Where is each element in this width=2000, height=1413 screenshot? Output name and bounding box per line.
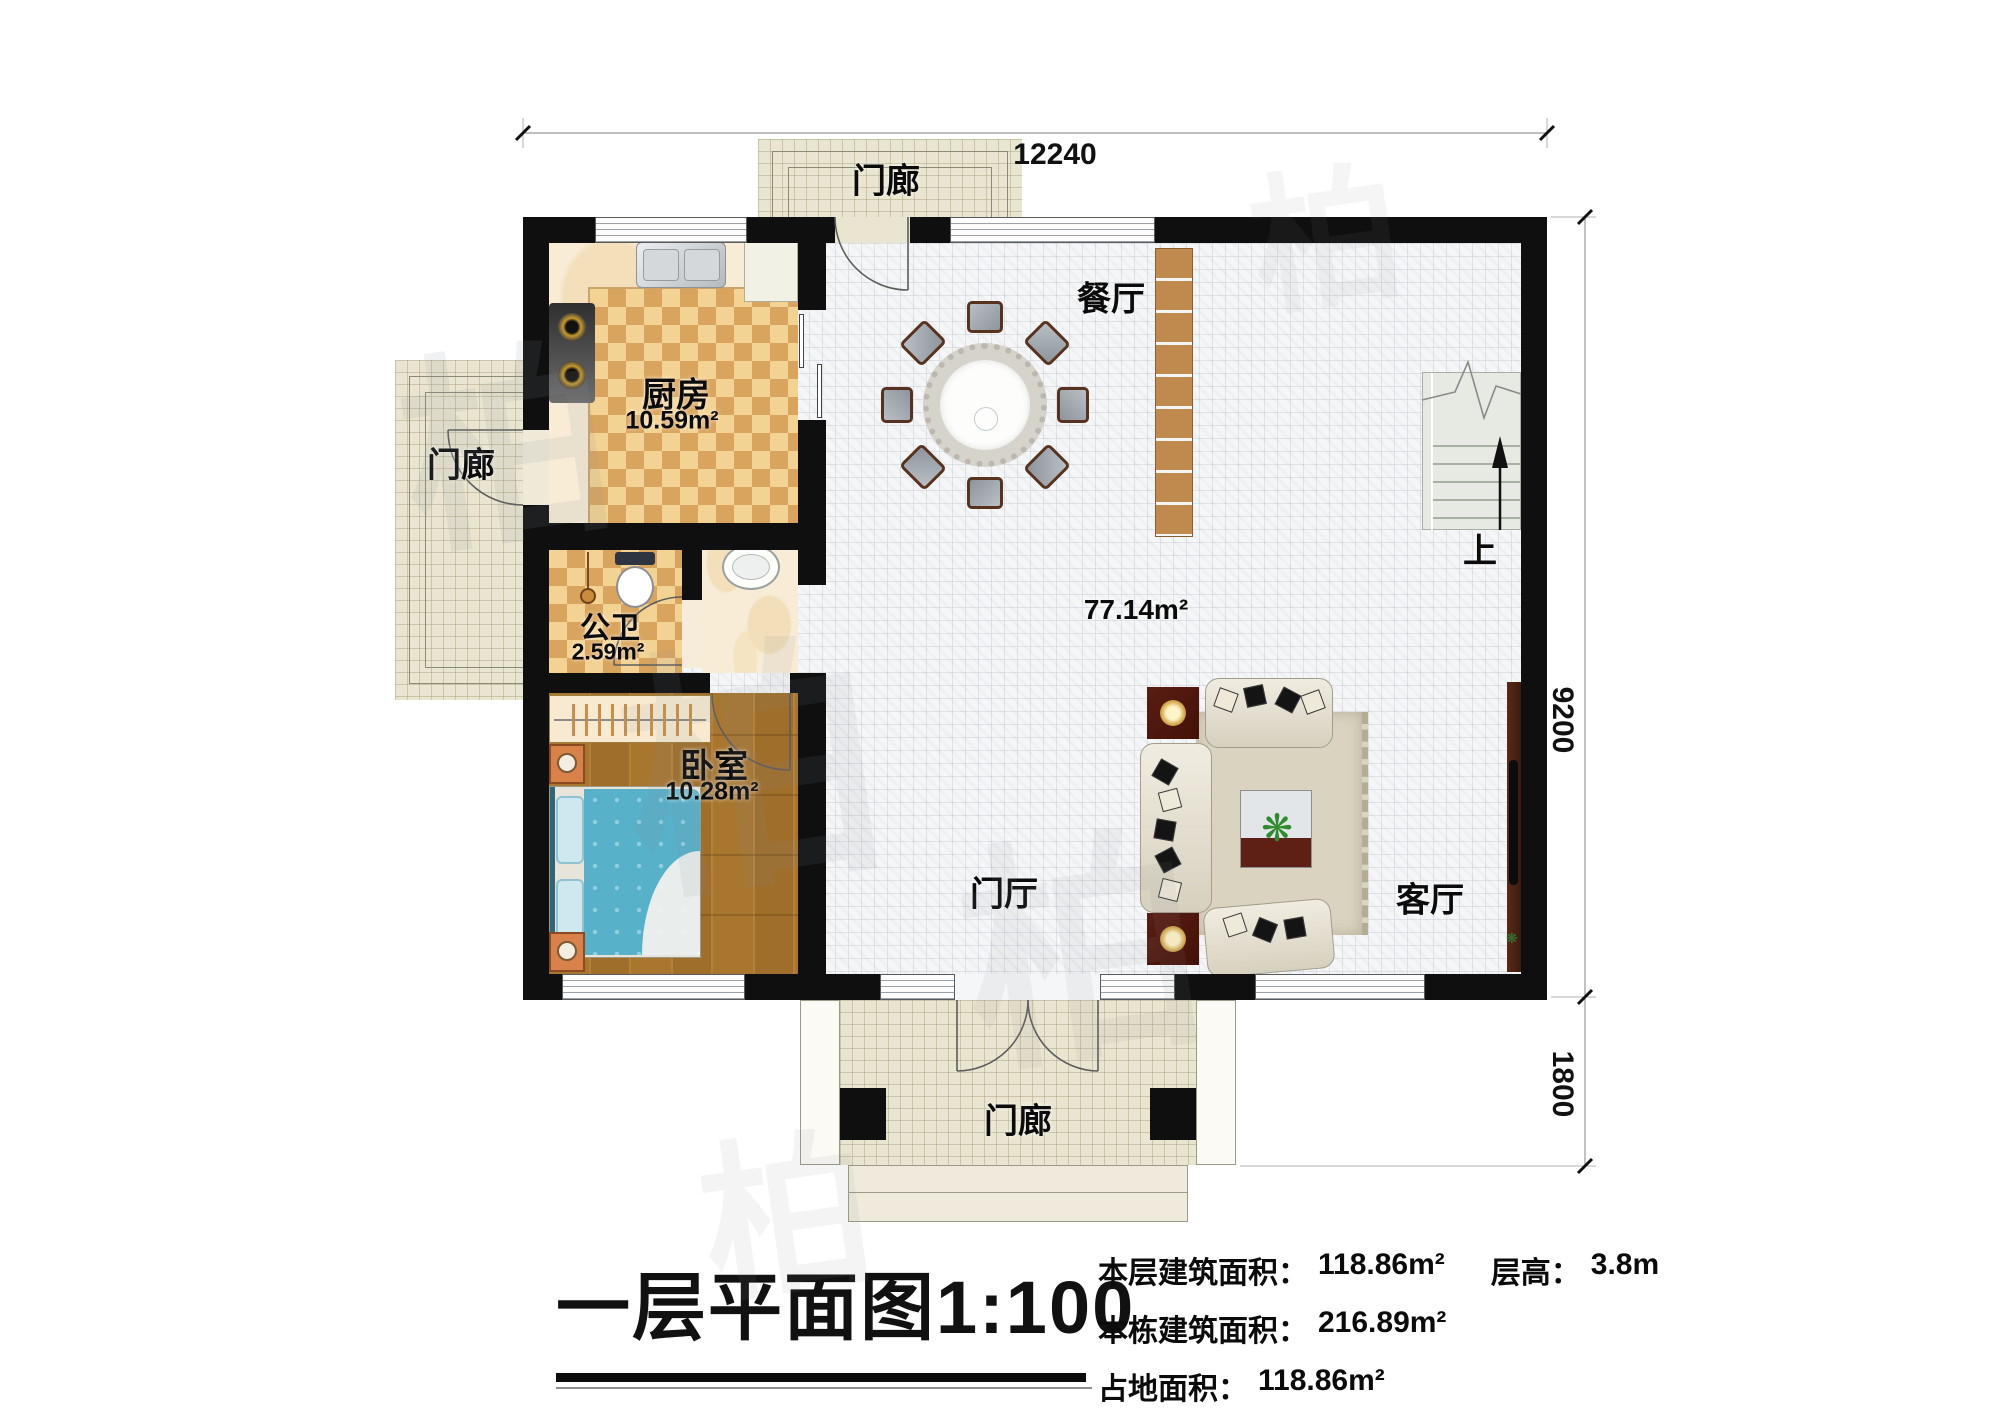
dim-right-label: 9200 bbox=[1545, 670, 1579, 770]
stair-treads bbox=[1431, 429, 1520, 529]
wall-top-c bbox=[910, 217, 950, 243]
nightstand-bottom bbox=[549, 932, 585, 972]
area-bath: 2.59m² bbox=[572, 639, 645, 666]
window-foyer-left bbox=[880, 974, 955, 1000]
nightstand-top bbox=[549, 744, 585, 784]
porch-column-left bbox=[840, 1088, 886, 1140]
stat-total-area-label: 本栋建筑面积： bbox=[1098, 1306, 1308, 1350]
wall-right bbox=[1521, 217, 1547, 1000]
burner-2 bbox=[558, 361, 586, 389]
stat-height-label: 层高： bbox=[1491, 1248, 1581, 1292]
wash-basin-icon bbox=[722, 544, 780, 590]
nightstand-lamp-icon bbox=[557, 941, 577, 961]
tv-icon bbox=[1509, 760, 1518, 885]
toilet-icon bbox=[612, 552, 658, 610]
toilet-bowl bbox=[616, 566, 654, 608]
stat-footprint-value: 118.86m² bbox=[1258, 1364, 1385, 1408]
dining-chair bbox=[881, 387, 913, 423]
title-block: 一层平面图1:100 bbox=[556, 1248, 1135, 1389]
shower-head-icon bbox=[578, 552, 598, 610]
burner-1 bbox=[558, 313, 586, 341]
stove bbox=[549, 303, 595, 403]
label-stairs-up: 上 bbox=[1463, 524, 1497, 573]
toilet-tank bbox=[615, 552, 655, 565]
porch-bottom-steps bbox=[848, 1165, 1188, 1222]
threshold-top-door bbox=[835, 217, 910, 243]
wall-bottom-c bbox=[1175, 974, 1255, 1000]
wall-kitchen-bottom bbox=[549, 523, 798, 550]
tv-plant-icon: ❋ bbox=[1506, 930, 1522, 946]
wall-bath-right bbox=[682, 550, 702, 600]
dining-table bbox=[923, 343, 1047, 467]
table-lamp-icon bbox=[1160, 926, 1186, 952]
kitchen-sink bbox=[636, 242, 726, 288]
label-hall-area: 77.14m² bbox=[1084, 594, 1188, 626]
dining-chair bbox=[967, 477, 1003, 509]
label-porch-bottom: 门廊 bbox=[984, 1094, 1052, 1143]
sofa-pillow bbox=[1243, 684, 1267, 708]
fridge bbox=[744, 240, 798, 302]
sink-basin-left bbox=[643, 249, 679, 281]
window-foyer-right bbox=[1100, 974, 1175, 1000]
porch-column-right bbox=[1150, 1088, 1196, 1140]
porch-step-line bbox=[848, 1192, 1188, 1193]
wall-kitchen-right-b bbox=[798, 420, 826, 585]
window-bedroom-bottom bbox=[562, 974, 745, 1000]
title-underline-thin bbox=[556, 1387, 1092, 1389]
plant-icon: ❋ bbox=[1255, 807, 1299, 851]
dining-table-ring bbox=[974, 407, 998, 431]
label-dining: 餐厅 bbox=[1077, 272, 1145, 321]
nightstand-lamp-icon bbox=[557, 753, 577, 773]
stair-stringer bbox=[1431, 373, 1433, 531]
label-porch-left: 门廊 bbox=[427, 438, 495, 487]
stat-floor-area-value: 118.86m² bbox=[1318, 1248, 1445, 1292]
wall-kitchen-right-a bbox=[798, 237, 826, 310]
dim-porch-label: 1800 bbox=[1545, 1034, 1579, 1134]
wall-bedroom-top-a bbox=[549, 673, 710, 693]
window-living-bottom bbox=[1255, 974, 1425, 1000]
staircase bbox=[1422, 372, 1521, 530]
stat-total-area-value: 216.89m² bbox=[1318, 1306, 1446, 1350]
area-kitchen: 10.59m² bbox=[625, 407, 718, 436]
floor-plan-canvas: ❋ ❋ bbox=[0, 0, 2000, 1413]
wall-left-a bbox=[523, 217, 549, 430]
threshold-bath-door bbox=[682, 600, 702, 668]
stats-block: 本层建筑面积：118.86m² 层高：3.8m 本栋建筑面积：216.89m² … bbox=[1098, 1248, 1659, 1413]
end-table-bottom bbox=[1147, 913, 1199, 965]
stat-floor-area-label: 本层建筑面积： bbox=[1098, 1248, 1308, 1292]
page-title: 一层平面图 bbox=[556, 1266, 936, 1349]
dining-chair bbox=[967, 301, 1003, 333]
shower-cord bbox=[587, 552, 589, 590]
wall-bedroom-right bbox=[798, 673, 826, 974]
wardrobe bbox=[549, 695, 711, 743]
stat-height-value: 3.8m bbox=[1591, 1248, 1659, 1292]
shower-knob bbox=[580, 588, 596, 604]
dining-cabinet bbox=[1155, 248, 1193, 537]
porch-side-left bbox=[800, 1000, 840, 1165]
title-underline bbox=[556, 1373, 1086, 1382]
coffee-table: ❋ bbox=[1240, 790, 1312, 868]
threshold-bottom-door bbox=[955, 974, 1100, 1000]
dim-top-label: 12240 bbox=[1013, 138, 1096, 172]
wall-bottom-b bbox=[745, 974, 880, 1000]
stat-footprint-label: 占地面积： bbox=[1098, 1364, 1248, 1408]
porch-side-right bbox=[1196, 1000, 1236, 1165]
window-kitchen-top bbox=[595, 217, 747, 243]
basin-inner bbox=[732, 554, 770, 580]
wall-left-b bbox=[523, 505, 549, 1000]
threshold-left-door bbox=[523, 430, 549, 505]
sliding-door-panel-2 bbox=[817, 364, 822, 418]
end-table-top bbox=[1147, 687, 1199, 739]
window-dining-top bbox=[950, 217, 1155, 243]
area-bedroom: 10.28m² bbox=[665, 778, 758, 807]
sink-basin-right bbox=[684, 249, 720, 281]
sliding-door-panel-1 bbox=[799, 314, 804, 368]
porch-left-outline-inner bbox=[425, 392, 537, 668]
sofa-pillow bbox=[1283, 916, 1306, 939]
label-foyer: 门厅 bbox=[970, 867, 1038, 916]
pillow-1 bbox=[556, 796, 584, 864]
dining-table-top bbox=[940, 360, 1030, 450]
wall-bedroom-top-b bbox=[790, 673, 826, 693]
label-living: 客厅 bbox=[1396, 873, 1464, 922]
label-porch-top: 门廊 bbox=[852, 154, 920, 203]
dining-chair bbox=[1057, 387, 1089, 423]
wardrobe-hangers bbox=[562, 704, 702, 736]
wall-top-d bbox=[1155, 217, 1547, 243]
table-lamp-icon bbox=[1160, 700, 1186, 726]
sofa-pillow bbox=[1153, 818, 1176, 841]
